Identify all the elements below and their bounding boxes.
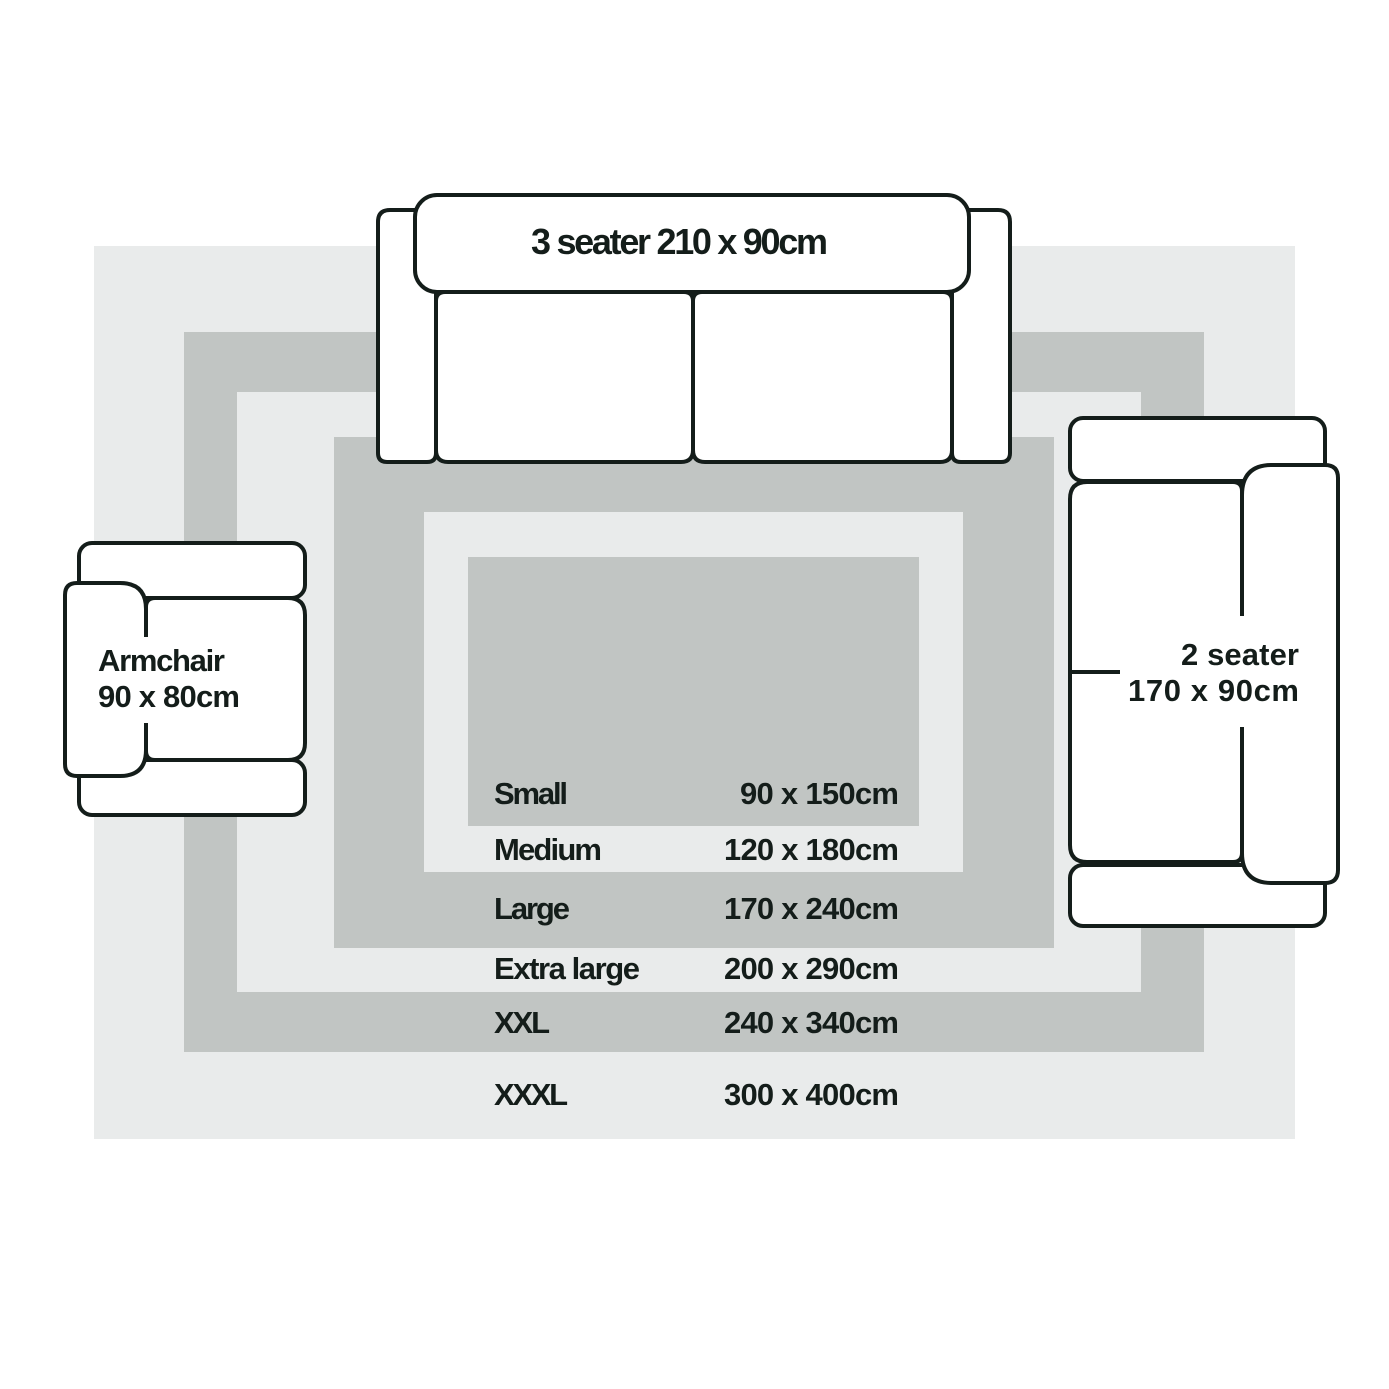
svg-text:200 x 290cm: 200 x 290cm bbox=[724, 951, 899, 986]
svg-text:90 x 80cm: 90 x 80cm bbox=[98, 679, 240, 714]
svg-text:170 x 90cm: 170 x 90cm bbox=[1128, 673, 1299, 708]
svg-text:240 x 340cm: 240 x 340cm bbox=[724, 1005, 899, 1040]
svg-text:Armchair: Armchair bbox=[98, 643, 225, 678]
svg-text:Medium: Medium bbox=[494, 832, 602, 867]
svg-text:90 x 150cm: 90 x 150cm bbox=[740, 776, 899, 811]
svg-text:3 seater 210 x 90cm: 3 seater 210 x 90cm bbox=[531, 221, 828, 262]
svg-text:XXXL: XXXL bbox=[494, 1077, 568, 1112]
svg-text:170 x 240cm: 170 x 240cm bbox=[724, 891, 899, 926]
svg-text:120 x 180cm: 120 x 180cm bbox=[724, 832, 899, 867]
svg-text:Small: Small bbox=[494, 776, 568, 811]
svg-text:2 seater: 2 seater bbox=[1181, 637, 1299, 672]
svg-text:XXL: XXL bbox=[494, 1005, 550, 1040]
svg-text:Large: Large bbox=[494, 891, 570, 926]
svg-text:Extra large: Extra large bbox=[494, 951, 640, 986]
svg-text:300 x 400cm: 300 x 400cm bbox=[724, 1077, 899, 1112]
